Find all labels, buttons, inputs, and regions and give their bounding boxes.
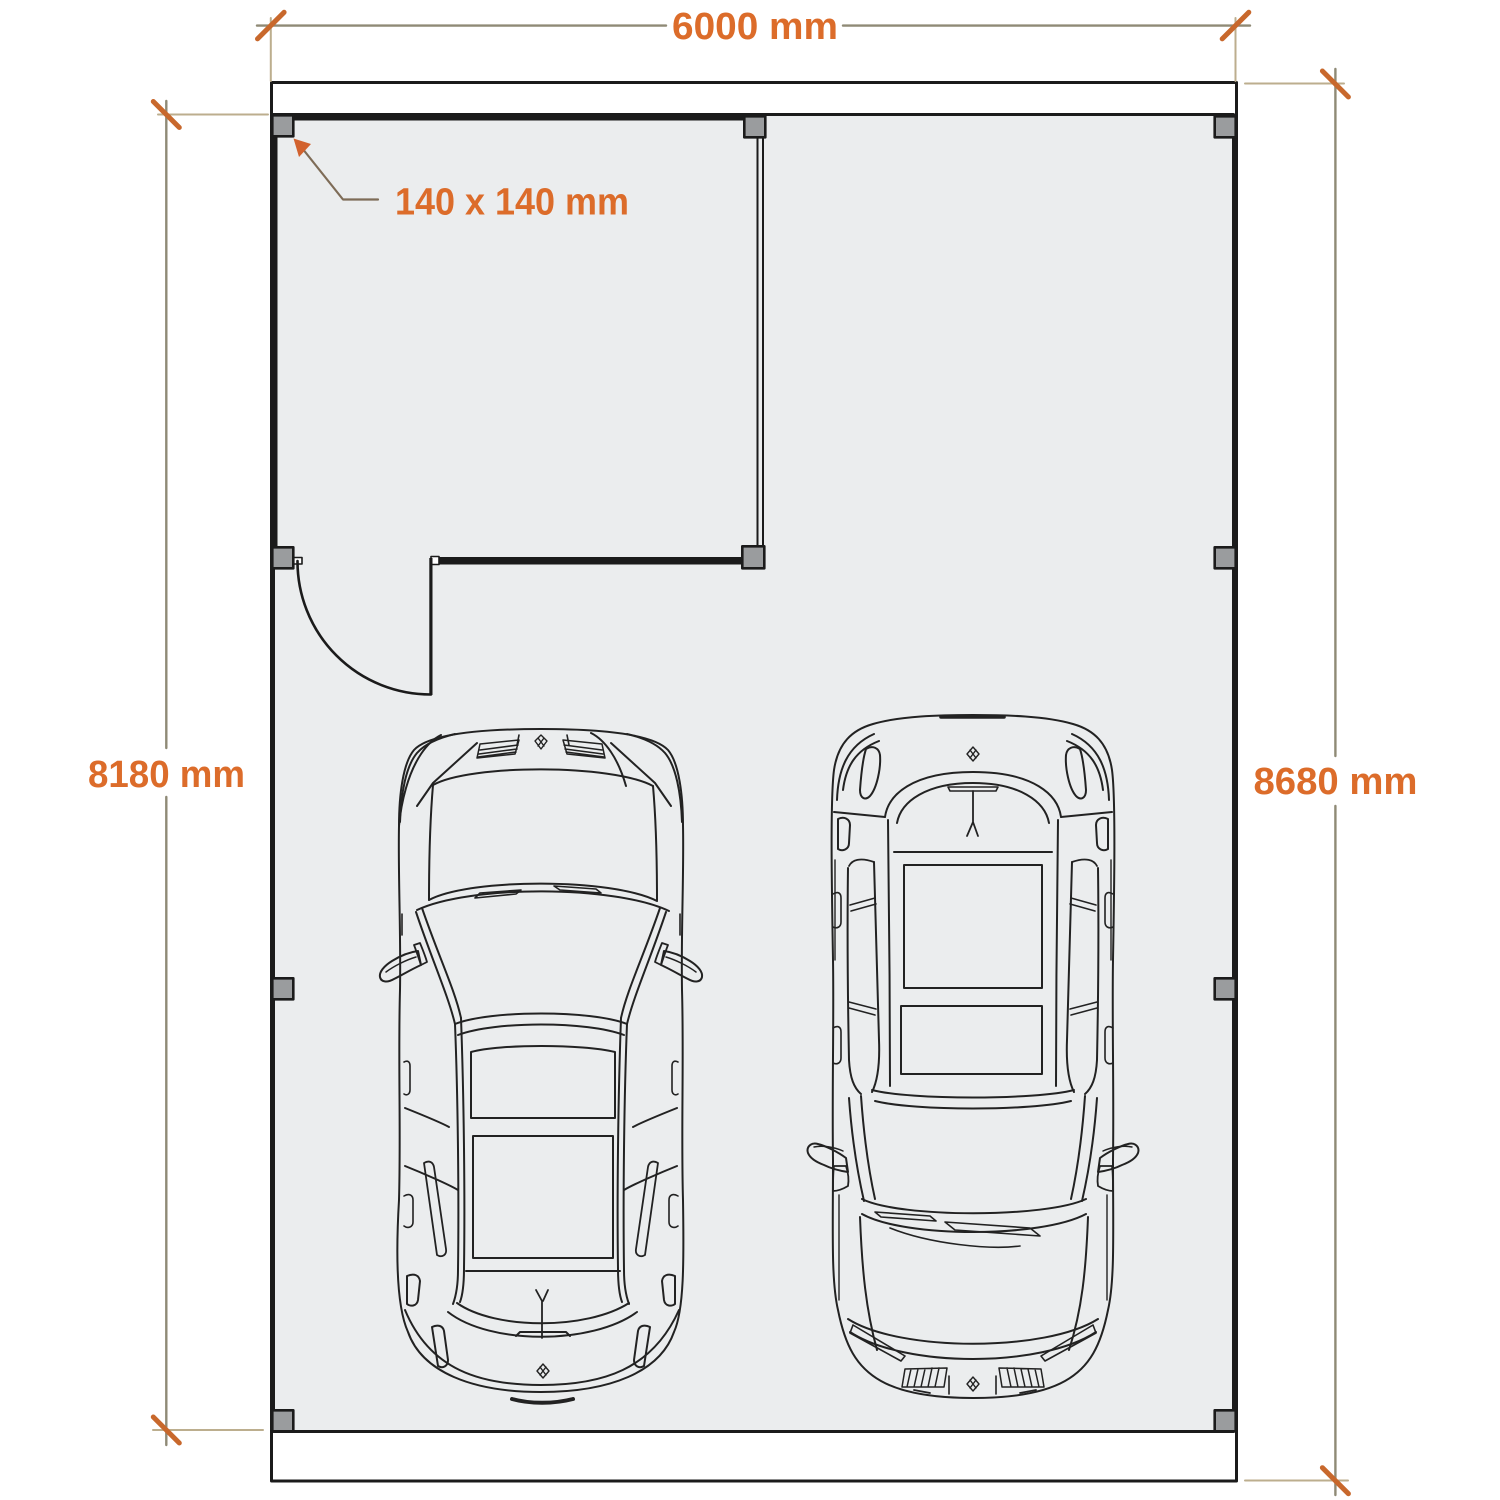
svg-text:140 x 140 mm: 140 x 140 mm bbox=[395, 182, 629, 224]
svg-text:8680 mm: 8680 mm bbox=[1254, 761, 1418, 803]
svg-text:6000 mm: 6000 mm bbox=[672, 6, 838, 48]
svg-text:8180 mm: 8180 mm bbox=[88, 754, 245, 796]
